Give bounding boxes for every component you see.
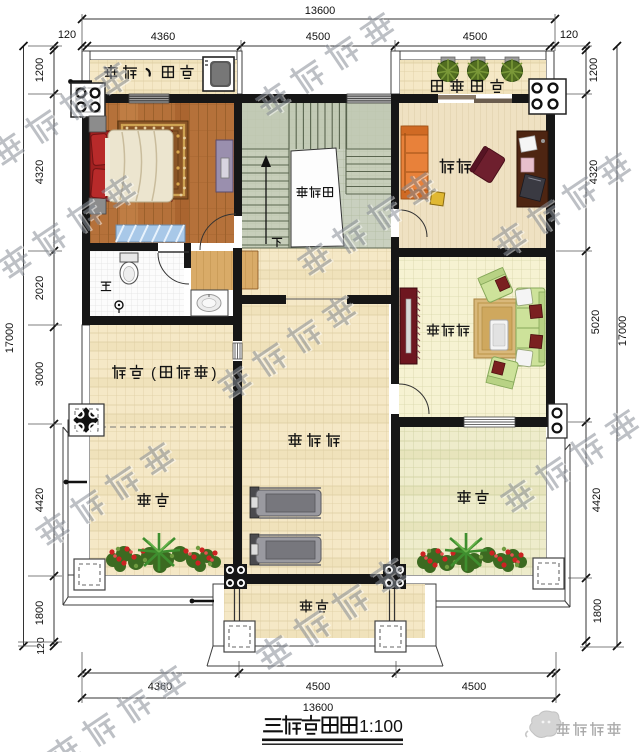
svg-text:4420: 4420 xyxy=(34,488,46,512)
svg-text:1800: 1800 xyxy=(34,601,46,625)
svg-text:4320: 4320 xyxy=(588,160,600,184)
svg-text:120: 120 xyxy=(58,29,76,41)
svg-text:120: 120 xyxy=(560,29,578,41)
svg-text:1800: 1800 xyxy=(592,599,604,623)
svg-text:1200: 1200 xyxy=(34,58,46,82)
svg-text:4500: 4500 xyxy=(306,31,330,43)
svg-text:4360: 4360 xyxy=(151,31,175,43)
svg-text:2020: 2020 xyxy=(34,276,46,300)
svg-text:5020: 5020 xyxy=(590,310,602,334)
svg-text:1:100: 1:100 xyxy=(359,716,403,736)
svg-text:(: ( xyxy=(151,365,156,382)
svg-text:13600: 13600 xyxy=(303,702,334,714)
svg-text:13600: 13600 xyxy=(305,5,336,17)
svg-text:17000: 17000 xyxy=(4,323,16,354)
svg-text:3000: 3000 xyxy=(34,362,46,386)
svg-text:4500: 4500 xyxy=(306,681,330,693)
svg-text:17000: 17000 xyxy=(617,316,629,347)
svg-text:1200: 1200 xyxy=(588,58,600,82)
svg-text:4320: 4320 xyxy=(34,160,46,184)
svg-text:): ) xyxy=(212,365,217,382)
svg-text:4420: 4420 xyxy=(591,488,603,512)
svg-text:4500: 4500 xyxy=(463,31,487,43)
svg-text:4500: 4500 xyxy=(462,681,486,693)
